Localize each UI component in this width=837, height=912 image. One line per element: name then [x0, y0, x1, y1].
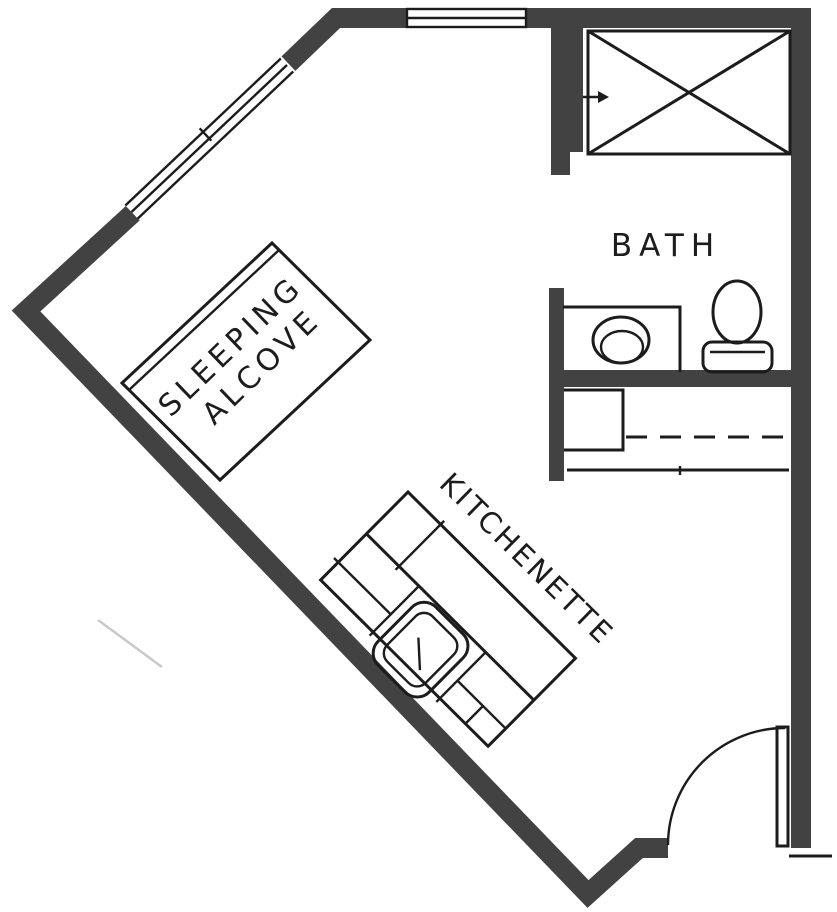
sink-bowl-inner	[601, 331, 643, 363]
closet-shelf	[564, 390, 623, 450]
top-window	[406, 8, 527, 28]
bath-label: BATH	[611, 228, 721, 264]
wall-bath-upper-left-notch	[551, 152, 570, 175]
door-leaf	[777, 727, 788, 846]
shaft-x-box	[583, 31, 790, 154]
kitchenette-label: KITCHENETTE	[433, 466, 621, 652]
cabinet-division-1	[396, 521, 445, 570]
kitchenette-counter	[302, 484, 579, 760]
diagonal-window	[122, 53, 295, 219]
scan-artifact-line	[98, 620, 162, 667]
window-outer-line	[138, 72, 293, 219]
wall-bath-lower-left	[549, 288, 564, 372]
marker-arrowhead	[598, 91, 609, 103]
toilet-tank	[703, 342, 772, 372]
cabinet-division-4	[465, 706, 483, 724]
closet	[564, 390, 789, 475]
cabinet-shelf-west	[334, 558, 391, 614]
wall-closet-left	[549, 387, 564, 481]
wall-bath-upper-left	[551, 28, 583, 152]
exterior-walls	[26, 18, 801, 894]
door-swing-arc	[668, 728, 785, 845]
floor-plan-drawing: SLEEPING ALCOVE KITCHENETTE BATH	[0, 0, 837, 912]
toilet-bowl	[713, 281, 761, 343]
wall-top-left-segment	[287, 18, 406, 65]
toilet	[703, 281, 772, 372]
bath-vanity	[563, 307, 680, 372]
floor-plan-page: SLEEPING ALCOVE KITCHENETTE BATH	[0, 0, 837, 912]
cabinet-division-2	[370, 586, 419, 636]
